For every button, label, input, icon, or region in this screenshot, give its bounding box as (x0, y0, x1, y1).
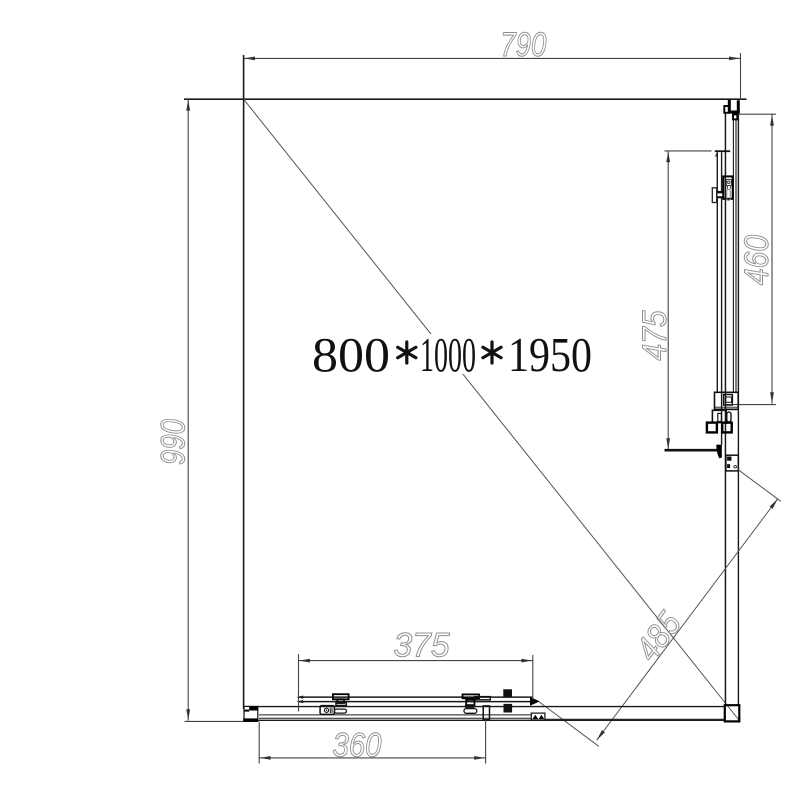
svg-text:790: 790 (500, 26, 546, 64)
svg-text:1950: 1950 (508, 327, 592, 382)
svg-text:800: 800 (312, 327, 390, 382)
svg-text:360: 360 (333, 727, 382, 765)
svg-text:1000: 1000 (420, 327, 476, 382)
svg-text:460: 460 (738, 235, 776, 285)
svg-text:485: 485 (628, 605, 688, 668)
svg-text:990: 990 (155, 419, 193, 465)
svg-text:375: 375 (394, 627, 450, 665)
svg-text:475: 475 (636, 310, 674, 360)
